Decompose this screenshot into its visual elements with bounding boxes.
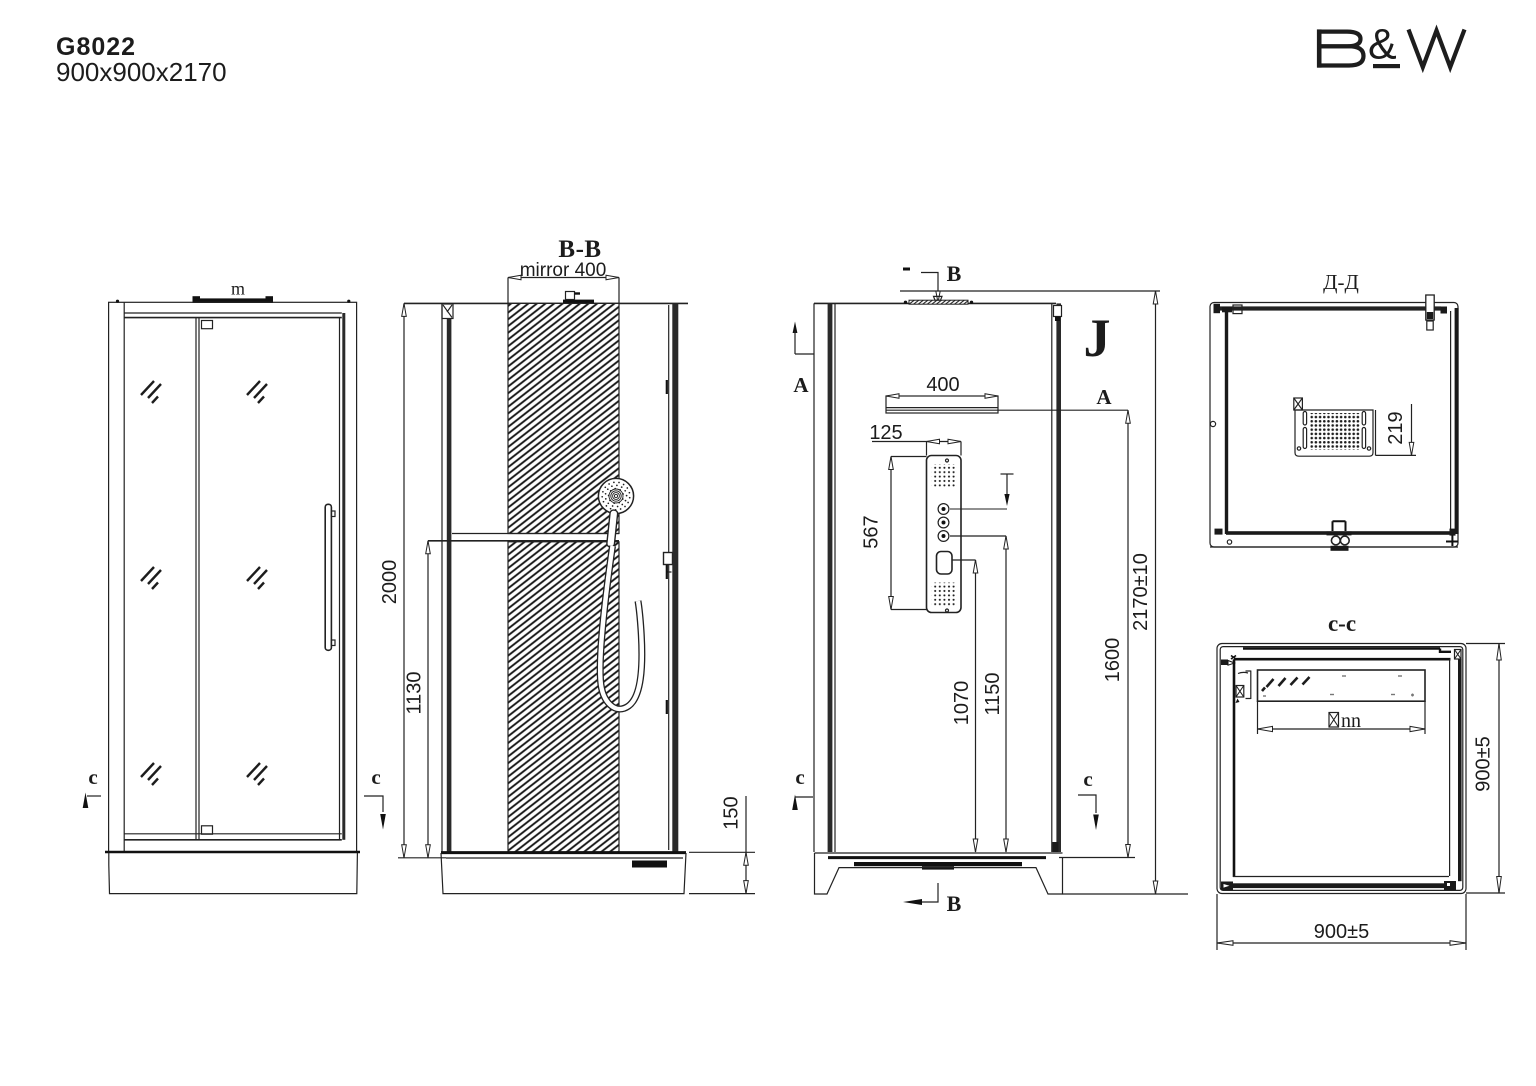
svg-text:900±5: 900±5 — [1314, 921, 1369, 943]
svg-text:1600: 1600 — [1102, 638, 1124, 683]
svg-text:900±5: 900±5 — [1473, 736, 1495, 791]
svg-text:567: 567 — [861, 515, 883, 548]
svg-text:c: c — [88, 765, 97, 789]
svg-text:&: & — [1368, 21, 1397, 69]
svg-text:Д-Д: Д-Д — [1323, 270, 1359, 294]
svg-text:A: A — [1096, 385, 1112, 409]
svg-text:2170±10: 2170±10 — [1130, 553, 1152, 631]
svg-text:1150: 1150 — [982, 672, 1004, 715]
svg-text:125: 125 — [869, 422, 902, 444]
svg-text:m: m — [231, 279, 245, 299]
svg-text:400: 400 — [926, 374, 959, 396]
svg-text:219: 219 — [1385, 411, 1407, 444]
svg-text:B: B — [947, 261, 962, 286]
svg-text:1070: 1070 — [951, 681, 973, 726]
svg-text:c: c — [795, 765, 804, 789]
svg-text:2000: 2000 — [379, 560, 401, 605]
svg-text:150: 150 — [721, 796, 743, 829]
svg-text:c: c — [1083, 767, 1092, 791]
svg-text:J: J — [1084, 308, 1111, 368]
svg-text:B-B: B-B — [558, 236, 601, 263]
svg-text:900x900x2170: 900x900x2170 — [56, 57, 227, 87]
svg-text:A: A — [793, 373, 809, 397]
svg-text:B: B — [947, 891, 962, 916]
svg-text:c: c — [371, 765, 380, 789]
svg-text:1130: 1130 — [404, 671, 426, 714]
svg-text:c-c: c-c — [1328, 611, 1356, 636]
svg-text:nn: nn — [1341, 710, 1361, 732]
